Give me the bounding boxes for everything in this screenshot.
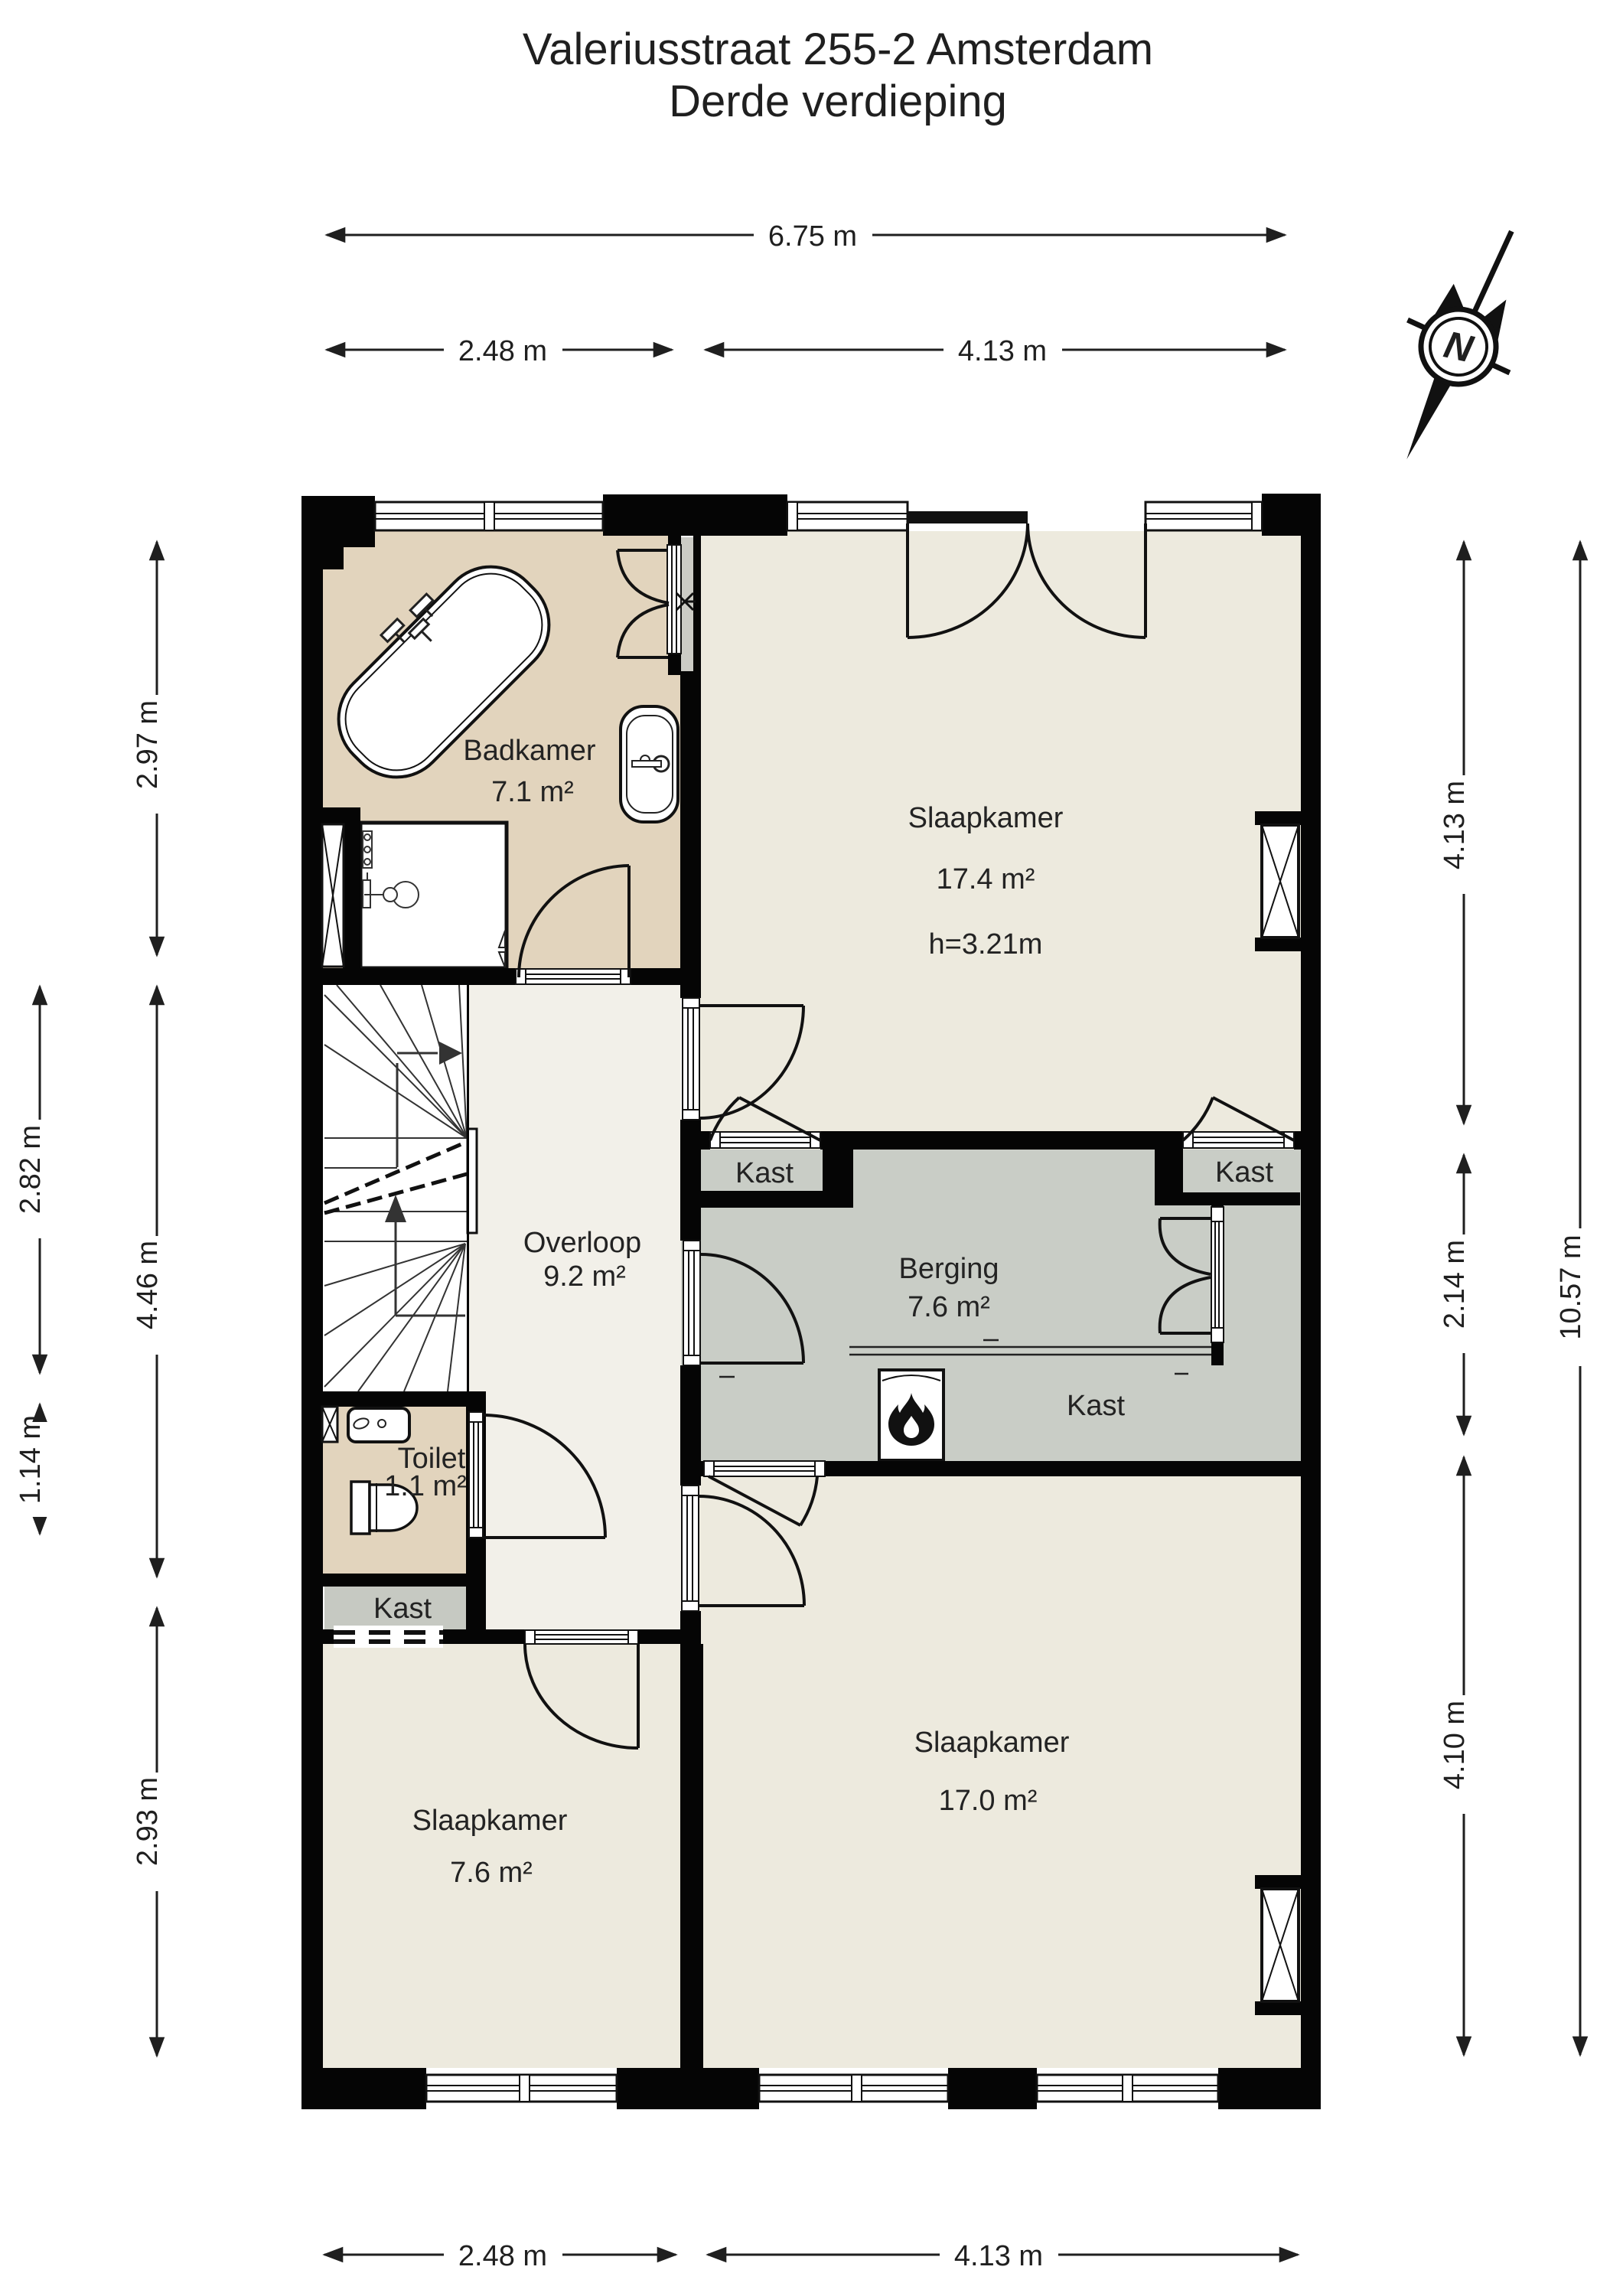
svg-text:1.14 m: 1.14 m <box>15 1415 47 1504</box>
svg-text:4.13 m: 4.13 m <box>958 335 1047 367</box>
svg-text:Valeriusstraat 255-2 Amsterdam: Valeriusstraat 255-2 Amsterdam <box>523 24 1153 74</box>
svg-text:2.14 m: 2.14 m <box>1439 1240 1471 1329</box>
svg-text:Slaapkamer: Slaapkamer <box>412 1805 568 1837</box>
svg-text:4.13 m: 4.13 m <box>954 2240 1043 2272</box>
svg-text:7.6 m²: 7.6 m² <box>450 1857 533 1889</box>
svg-text:Kast: Kast <box>373 1593 432 1625</box>
svg-text:17.0 m²: 17.0 m² <box>939 1785 1038 1817</box>
svg-text:Derde verdieping: Derde verdieping <box>669 77 1007 126</box>
svg-text:Slaapkamer: Slaapkamer <box>908 802 1064 834</box>
svg-text:Berging: Berging <box>899 1253 999 1285</box>
svg-text:17.4 m²: 17.4 m² <box>937 863 1035 895</box>
svg-text:Kast: Kast <box>1215 1156 1273 1189</box>
svg-text:h=3.21m: h=3.21m <box>929 928 1043 960</box>
svg-text:Badkamer: Badkamer <box>463 735 596 767</box>
svg-text:2.82 m: 2.82 m <box>15 1125 47 1214</box>
svg-text:4.13 m: 4.13 m <box>1439 781 1471 869</box>
svg-text:Slaapkamer: Slaapkamer <box>914 1727 1070 1759</box>
svg-text:6.75 m: 6.75 m <box>768 220 857 253</box>
svg-text:Kast: Kast <box>735 1157 794 1189</box>
svg-text:2.48 m: 2.48 m <box>458 335 547 367</box>
svg-text:Overloop: Overloop <box>523 1227 641 1259</box>
svg-text:7.6 m²: 7.6 m² <box>908 1291 990 1323</box>
svg-text:9.2 m²: 9.2 m² <box>543 1261 626 1293</box>
svg-text:4.10 m: 4.10 m <box>1439 1701 1471 1789</box>
svg-text:10.57 m: 10.57 m <box>1555 1234 1587 1339</box>
svg-text:1.1 m²: 1.1 m² <box>384 1470 467 1502</box>
svg-text:Kast: Kast <box>1067 1390 1125 1422</box>
svg-text:7.1 m²: 7.1 m² <box>491 776 574 808</box>
svg-text:2.48 m: 2.48 m <box>458 2240 547 2272</box>
svg-text:2.93 m: 2.93 m <box>132 1777 164 1866</box>
svg-text:2.97 m: 2.97 m <box>132 700 164 789</box>
svg-text:4.46 m: 4.46 m <box>132 1241 164 1329</box>
